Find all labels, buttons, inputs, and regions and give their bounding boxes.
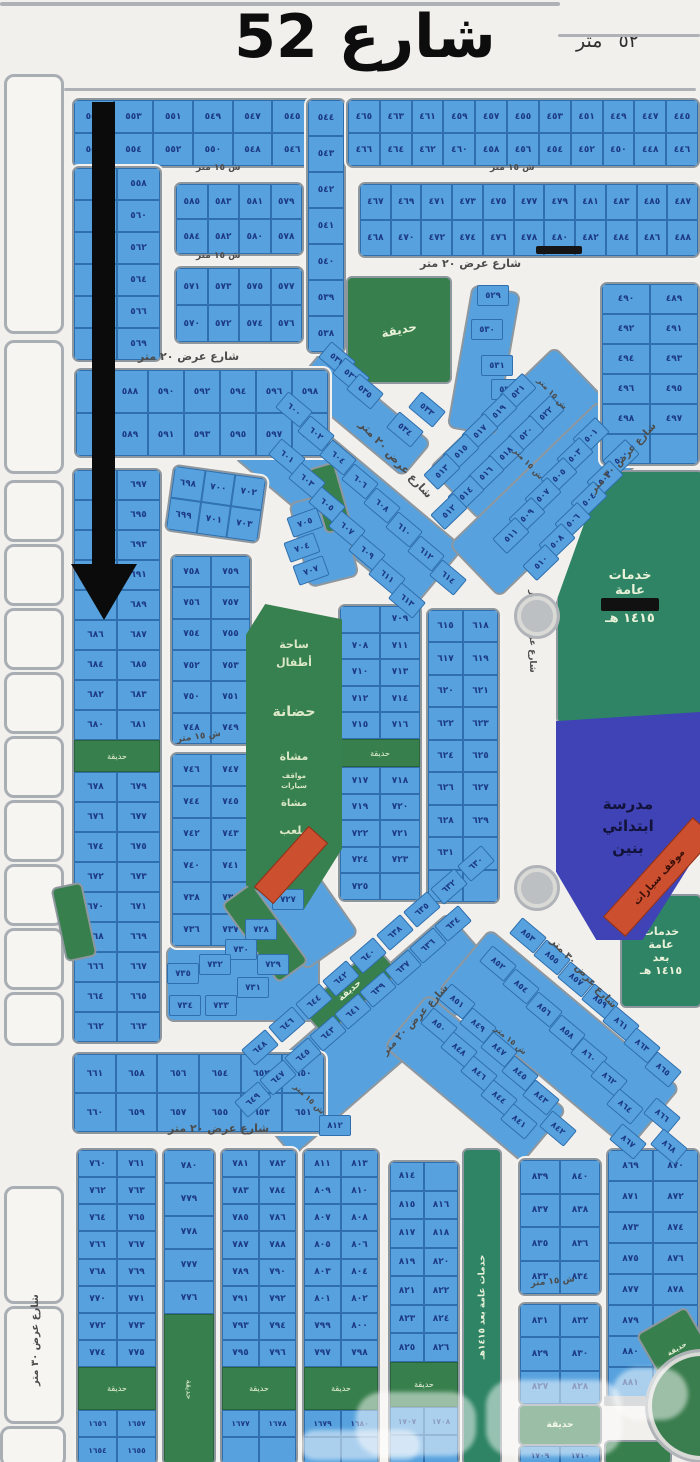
park-label: حديقة bbox=[370, 749, 390, 758]
plot-٧٢٠: ٧٢٠ bbox=[380, 794, 420, 821]
plot-٨٠٨: ٨٠٨ bbox=[341, 1204, 378, 1231]
school-label: بنين bbox=[612, 839, 643, 857]
plot-٧٥٢: ٧٥٢ bbox=[172, 650, 211, 681]
plot-٤٦٥: ٤٦٥ bbox=[348, 100, 380, 133]
plot-٦٩٥: ٦٩٥ bbox=[117, 500, 160, 530]
adjacent-plot-outline bbox=[4, 340, 64, 474]
plot-٤٥٤: ٤٥٤ bbox=[539, 133, 571, 166]
plot-٤٩٦: ٤٩٦ bbox=[602, 374, 650, 404]
plot-row: ٧٧٠٧٧١ bbox=[78, 1286, 156, 1313]
plot-٨٠١: ٨٠١ bbox=[304, 1286, 341, 1313]
plot-row: ٧٩١٧٩٢ bbox=[222, 1286, 296, 1313]
plot-row: ٧٩٣٧٩٤ bbox=[222, 1313, 296, 1340]
street-label: شارع عرض ٢٠ متر bbox=[168, 1122, 269, 1135]
plot-٦٦٠: ٦٦٠ bbox=[74, 1093, 116, 1132]
plot-٥٥٤: ٥٥٤ bbox=[114, 133, 154, 166]
plot-٨٣٧: ٨٣٧ bbox=[520, 1194, 560, 1228]
plot-٤٨٦: ٤٨٦ bbox=[637, 220, 668, 256]
plot-٤٦٩: ٤٦٩ bbox=[391, 184, 422, 220]
plot-row: ٧٤٢٧٤٣ bbox=[172, 818, 250, 850]
park-label: حديقة bbox=[249, 1384, 269, 1393]
plot-٧٣٢: ٧٣٢ bbox=[199, 954, 231, 975]
plot-row: ٧٢٤٧٢٣ bbox=[340, 847, 420, 874]
block-445: ٤٦٥٤٦٣٤٦١٤٥٩٤٥٧٤٥٥٤٥٣٤٥١٤٤٩٤٤٧٤٤٥٤٦٦٤٦٤٤… bbox=[346, 98, 700, 168]
block-760: ٧٦٠٧٦١٧٦٢٧٦٣٧٦٤٧٦٥٧٦٦٧٦٧٧٦٨٧٦٩٧٧٠٧٧١٧٧٢٧… bbox=[76, 1148, 158, 1462]
plot-row: ٧٤٠٧٤١ bbox=[172, 850, 250, 882]
plot-٧٨٣: ٧٨٣ bbox=[222, 1177, 259, 1204]
plot-٧٢٢: ٧٢٢ bbox=[340, 820, 380, 847]
plot-٨١٧: ٨١٧ bbox=[390, 1219, 424, 1248]
plot-٨٧٧: ٨٧٧ bbox=[608, 1274, 653, 1305]
plot-row: ٥٤٢ bbox=[308, 172, 344, 208]
plot-٧٧٤: ٧٧٤ bbox=[78, 1340, 117, 1367]
plot-row: ٨٧٥٨٧٦ bbox=[608, 1243, 698, 1274]
plot-row: ٦٨٤٦٨٥ bbox=[74, 650, 160, 680]
plot-row: ٤٦٨٤٧٠٤٧٢٤٧٤٤٧٦٤٧٨٤٨٠٤٨٢٤٨٤٤٨٦٤٨٨ bbox=[360, 220, 698, 256]
plot-cell-empty bbox=[424, 1162, 458, 1191]
plot-row: ٧٢٢٧٢١ bbox=[340, 820, 420, 847]
plot-٨٧٦: ٨٧٦ bbox=[653, 1243, 698, 1274]
plot-٥٤٩: ٥٤٩ bbox=[193, 100, 233, 133]
plot-٤٦٨: ٤٦٨ bbox=[360, 220, 391, 256]
plot-٥٨٠: ٥٨٠ bbox=[239, 219, 271, 254]
plot-row: ٧٠٨٧١١ bbox=[340, 633, 420, 660]
plot-٤٨١: ٤٨١ bbox=[575, 184, 606, 220]
plot-row: ٥٦٢ bbox=[74, 232, 160, 264]
plot-٦٦٥: ٦٦٥ bbox=[117, 982, 160, 1012]
plot-٤٧٦: ٤٧٦ bbox=[483, 220, 514, 256]
plot-٥٨٩: ٥٨٩ bbox=[112, 413, 148, 456]
area-label: عامة bbox=[615, 583, 645, 598]
plot-٧٥٩: ٧٥٩ bbox=[211, 556, 250, 587]
plot-٧٧٣: ٧٧٣ bbox=[117, 1313, 156, 1340]
plot-٥٣٠: ٥٣٠ bbox=[471, 319, 503, 340]
plot-row: ٨٣٧٨٣٨ bbox=[520, 1194, 600, 1228]
plot-row: ٧٥٠٧٥١ bbox=[172, 681, 250, 712]
plot-row: ٨٠١٨٠٢ bbox=[304, 1286, 378, 1313]
plot-row: ٧٨٩٧٩٠ bbox=[222, 1259, 296, 1286]
adjacent-plot-outline bbox=[4, 672, 64, 734]
plot-٨٣٨: ٨٣٨ bbox=[560, 1194, 600, 1228]
plot-٧٩١: ٧٩١ bbox=[222, 1286, 259, 1313]
plot-row: ٥٨٤٥٨٢٥٨٠٥٧٨ bbox=[176, 219, 302, 254]
plot-row: ٦٧٦٦٧٧ bbox=[74, 802, 160, 832]
plot-row: ٨٣١٨٣٢ bbox=[520, 1304, 600, 1337]
park-label: حديقة bbox=[185, 1379, 194, 1399]
plot-٧٥٧: ٧٥٧ bbox=[211, 587, 250, 618]
plot-row: ٨١١٨١٣ bbox=[304, 1150, 378, 1177]
plot-٦٨٠: ٦٨٠ bbox=[74, 710, 117, 740]
plot-٨٣٦: ٨٣٦ bbox=[560, 1227, 600, 1261]
plot-row: ٧٤٦٧٤٧ bbox=[172, 754, 250, 786]
plot-٨٢٥: ٨٢٥ bbox=[390, 1333, 424, 1362]
plot-row: ٥٣٩ bbox=[308, 280, 344, 316]
plot-٨٠٢: ٨٠٢ bbox=[341, 1286, 378, 1313]
plot-٥٤٢: ٥٤٢ bbox=[308, 172, 344, 208]
plot-٦٦٢: ٦٦٢ bbox=[74, 1012, 117, 1042]
plot-row: ٧١٩٧٢٠ bbox=[340, 794, 420, 821]
adjacent-plot-outline bbox=[4, 1186, 64, 1304]
plot-cell-empty bbox=[340, 606, 380, 633]
plot-٤٤٥: ٤٤٥ bbox=[666, 100, 698, 133]
plot-٨١١: ٨١١ bbox=[304, 1150, 341, 1177]
page-title: شارع 52 bbox=[150, 2, 580, 72]
location-arrow bbox=[92, 102, 115, 564]
plot-٨١٤: ٨١٤ bbox=[390, 1162, 424, 1191]
plot-row: ٧٧٧ bbox=[164, 1249, 214, 1282]
plot-٥٥١: ٥٥١ bbox=[153, 100, 193, 133]
plot-٧٠٢: ٧٠٢ bbox=[231, 474, 266, 510]
plot-٨١٩: ٨١٩ bbox=[390, 1248, 424, 1277]
plot-٤٥٦: ٤٥٦ bbox=[507, 133, 539, 166]
plot-٧١٢: ٧١٢ bbox=[340, 686, 380, 713]
plot-٧٤٧: ٧٤٧ bbox=[211, 754, 250, 786]
plot-٤٥١: ٤٥١ bbox=[571, 100, 603, 133]
plot-٤٤٩: ٤٤٩ bbox=[603, 100, 635, 133]
park-strip: حديقة bbox=[78, 1367, 156, 1410]
plot-٦٧١: ٦٧١ bbox=[117, 892, 160, 922]
area-label: عامة bbox=[648, 938, 673, 951]
adjacent-plot-outline bbox=[4, 608, 64, 670]
plot-٧٥٣: ٧٥٣ bbox=[211, 650, 250, 681]
plot-row: ٦٢٤٦٢٥ bbox=[428, 740, 498, 772]
plot-٥٣٩: ٥٣٩ bbox=[308, 280, 344, 316]
plot-٦٩٩: ٦٩٩ bbox=[166, 498, 201, 534]
plot-row: ٨٠٣٨٠٤ bbox=[304, 1259, 378, 1286]
plot-٤٥٥: ٤٥٥ bbox=[507, 100, 539, 133]
plot-٥٨٢: ٥٨٢ bbox=[208, 219, 240, 254]
plot-٥٩٢: ٥٩٢ bbox=[184, 370, 220, 413]
plot-٧٦٦: ٧٦٦ bbox=[78, 1231, 117, 1258]
plot-٧٨٤: ٧٨٤ bbox=[259, 1177, 296, 1204]
plot-٤٥٣: ٤٥٣ bbox=[539, 100, 571, 133]
area-label-vertical: خدمات عامة بعد ١٤١٥هـ bbox=[477, 1255, 487, 1360]
plot-٧٧٩: ٧٧٩ bbox=[164, 1183, 214, 1216]
park-feature-label: ساحة bbox=[246, 638, 342, 651]
plot-row: ٧٥٨٧٥٩ bbox=[172, 556, 250, 587]
location-arrow-head bbox=[71, 564, 137, 620]
plot-٨٣١: ٨٣١ bbox=[520, 1304, 560, 1337]
plot-٥٧٨: ٥٧٨ bbox=[271, 219, 303, 254]
plot-٨٠٠: ٨٠٠ bbox=[341, 1313, 378, 1340]
plot-٤٨٨: ٤٨٨ bbox=[667, 220, 698, 256]
plot-row: ٨٧١٨٧٢ bbox=[608, 1181, 698, 1212]
plot-٧٩٧: ٧٩٧ bbox=[304, 1340, 341, 1367]
plot-٨٧٢: ٨٧٢ bbox=[653, 1181, 698, 1212]
plot-٦٧٤: ٦٧٤ bbox=[74, 832, 117, 862]
plot-٥٩٤: ٥٩٤ bbox=[220, 370, 256, 413]
plot-٨١٦: ٨١٦ bbox=[424, 1191, 458, 1220]
plot-٦١٨: ٦١٨ bbox=[463, 610, 498, 642]
roundabout bbox=[517, 868, 557, 908]
plot-٧٨٧: ٧٨٧ bbox=[222, 1231, 259, 1258]
plot-٦٦٣: ٦٦٣ bbox=[117, 1012, 160, 1042]
plot-٧٧٦: ٧٧٦ bbox=[164, 1281, 214, 1314]
plot-٦١٩: ٦١٩ bbox=[463, 642, 498, 674]
plot-٧٢٣: ٧٢٣ bbox=[380, 847, 420, 874]
plot-row: ٦٩٥ bbox=[74, 500, 160, 530]
park-label: حديقة bbox=[107, 1384, 127, 1393]
plot-٨١٥: ٨١٥ bbox=[390, 1191, 424, 1220]
block-489: ٤٩٠٤٨٩٤٩٢٤٩١٤٩٤٤٩٣٤٩٦٤٩٥٤٩٨٤٩٧٤٩٩ bbox=[600, 282, 700, 466]
plot-٧٥٥: ٧٥٥ bbox=[211, 619, 250, 650]
plot-٥٣١: ٥٣١ bbox=[481, 355, 513, 376]
plot-row: ٨٢٣٨٢٤ bbox=[390, 1305, 458, 1334]
plot-٤٩٣: ٤٩٣ bbox=[650, 344, 698, 374]
plot-٦٨٣: ٦٨٣ bbox=[117, 680, 160, 710]
plot-٦٨٦: ٦٨٦ bbox=[74, 620, 117, 650]
plot-٧٨٢: ٧٨٢ bbox=[259, 1150, 296, 1177]
plot-٨٣٩: ٨٣٩ bbox=[520, 1160, 560, 1194]
plot-row: ٧٨٥٧٨٦ bbox=[222, 1204, 296, 1231]
plot-row: ٦٧٨٦٧٩ bbox=[74, 772, 160, 802]
plot-٦٢٠: ٦٢٠ bbox=[428, 675, 463, 707]
plot-٤٦٤: ٤٦٤ bbox=[380, 133, 412, 166]
plot-row: ٨٣٥٨٣٦ bbox=[520, 1227, 600, 1261]
watermark bbox=[300, 1430, 420, 1460]
plot-٨٠٧: ٨٠٧ bbox=[304, 1204, 341, 1231]
plot-٧٣٥: ٧٣٥ bbox=[167, 963, 199, 984]
plot-٤٤٧: ٤٤٧ bbox=[634, 100, 666, 133]
plot-٧٩٥: ٧٩٥ bbox=[222, 1340, 259, 1367]
adjacent-plot-outline bbox=[4, 544, 64, 606]
plot-row: ٦٩٧ bbox=[74, 470, 160, 500]
plot-٧٣٨: ٧٣٨ bbox=[172, 882, 211, 914]
plot-row: ٤٦٦٤٦٤٤٦٢٤٦٠٤٥٨٤٥٦٤٥٤٤٥٢٤٥٠٤٤٨٤٤٦ bbox=[348, 133, 698, 166]
plot-٨٣٢: ٨٣٢ bbox=[560, 1304, 600, 1337]
plot-٦٦٤: ٦٦٤ bbox=[74, 982, 117, 1012]
plot-row: ٨٢١٨٢٢ bbox=[390, 1276, 458, 1305]
plot-row: ٦٨٢٦٨٣ bbox=[74, 680, 160, 710]
plot-row: ٧٨٧٧٨٨ bbox=[222, 1231, 296, 1258]
plot-٧٦٨: ٧٦٨ bbox=[78, 1259, 117, 1286]
plot-٦٢١: ٦٢١ bbox=[463, 675, 498, 707]
plot-row: ٨٧٧٨٧٨ bbox=[608, 1274, 698, 1305]
plot-٧٩٠: ٧٩٠ bbox=[259, 1259, 296, 1286]
block-571: ٥٧١٥٧٣٥٧٥٥٧٧٥٧٠٥٧٢٥٧٤٥٧٦ bbox=[174, 266, 304, 344]
plot-row: ٨٢٥٨٢٦ bbox=[390, 1333, 458, 1362]
plot-row: ٧١٠٧١٣ bbox=[340, 659, 420, 686]
plot-٧٩٨: ٧٩٨ bbox=[341, 1340, 378, 1367]
plot-٧٤٣: ٧٤٣ bbox=[211, 818, 250, 850]
plot-٥٤٤: ٥٤٤ bbox=[308, 100, 344, 136]
adjacent-plot-outline bbox=[0, 1426, 66, 1462]
plot-cell-empty bbox=[380, 873, 420, 900]
plot-row bbox=[222, 1437, 296, 1462]
plot-٥٩٣: ٥٩٣ bbox=[184, 413, 220, 456]
plot-٧٠٨: ٧٠٨ bbox=[340, 633, 380, 660]
plot-٤٩١: ٤٩١ bbox=[650, 314, 698, 344]
plot-٧١٨: ٧١٨ bbox=[380, 767, 420, 794]
plot-row: ٧٨٣٧٨٤ bbox=[222, 1177, 296, 1204]
plot-٧٤٤: ٧٤٤ bbox=[172, 786, 211, 818]
park-area: حديقة bbox=[346, 276, 452, 384]
plot-row: ٧١٢٧١٤ bbox=[340, 686, 420, 713]
plot-row: ٥٧٠٥٧٢٥٧٤٥٧٦ bbox=[176, 305, 302, 342]
plot-row: ٨١٥٨١٦ bbox=[390, 1191, 458, 1220]
plot-row: ٦٧٤٦٧٥ bbox=[74, 832, 160, 862]
plot-row: ٧٧٤٧٧٥ bbox=[78, 1340, 156, 1367]
plot-row: ٨٦٩٨٧٠ bbox=[608, 1150, 698, 1181]
plot-٥٧٧: ٥٧٧ bbox=[271, 268, 303, 305]
plot-٧٥١: ٧٥١ bbox=[211, 681, 250, 712]
plot-٤٧٣: ٤٧٣ bbox=[452, 184, 483, 220]
plot-٨٢٢: ٨٢٢ bbox=[424, 1276, 458, 1305]
plot-٥٦٢: ٥٦٢ bbox=[117, 232, 160, 264]
plot-٥٩١: ٥٩١ bbox=[148, 413, 184, 456]
plot-row: ٦٩٣ bbox=[74, 530, 160, 560]
plot-٥٧٥: ٥٧٥ bbox=[239, 268, 271, 305]
adjacent-plot-outline bbox=[4, 928, 64, 990]
plot-٧٦٥: ٧٦٥ bbox=[117, 1204, 156, 1231]
plot-٧٤٦: ٧٤٦ bbox=[172, 754, 211, 786]
plot-row: ٧٧٨ bbox=[164, 1216, 214, 1249]
plot-٧٣٤: ٧٣٤ bbox=[169, 995, 201, 1016]
plot-٧٣٣: ٧٣٣ bbox=[205, 995, 237, 1016]
plot-٨٠٩: ٨٠٩ bbox=[304, 1177, 341, 1204]
plot-٨١٢: ٨١٢ bbox=[319, 1115, 351, 1136]
plot-row: ٧٦٠٧٦١ bbox=[78, 1150, 156, 1177]
plot-٦٢٩: ٦٢٩ bbox=[463, 805, 498, 837]
plot-٥٨٥: ٥٨٥ bbox=[176, 184, 208, 219]
plot-٤٧٥: ٤٧٥ bbox=[483, 184, 514, 220]
park-feature-label: حضانة bbox=[246, 704, 342, 720]
plot-٨٧١: ٨٧١ bbox=[608, 1181, 653, 1212]
plot-٨٣٠: ٨٣٠ bbox=[560, 1337, 600, 1370]
block-708: ٧٠٩٧٠٨٧١١٧١٠٧١٣٧١٢٧١٤٧١٥٧١٦حديقة٧١٧٧١٨٧١… bbox=[338, 604, 422, 902]
plot-٧١٤: ٧١٤ bbox=[380, 686, 420, 713]
plot-٥٨٤: ٥٨٤ bbox=[176, 219, 208, 254]
plot-٦٨٤: ٦٨٤ bbox=[74, 650, 117, 680]
plot-row: ٦٢٨٦٢٩ bbox=[428, 805, 498, 837]
plot-٧٤٥: ٧٤٥ bbox=[211, 786, 250, 818]
plot-row: ٨٠٩٨١٠ bbox=[304, 1177, 378, 1204]
plot-٧١١: ٧١١ bbox=[380, 633, 420, 660]
plot-٧٥٦: ٧٥٦ bbox=[172, 587, 211, 618]
plot-row: ٧٨٠ bbox=[164, 1150, 214, 1183]
plot-٨٢٠: ٨٢٠ bbox=[424, 1248, 458, 1277]
plot-row: ٧٥٤٧٥٥ bbox=[172, 619, 250, 650]
area-label: ١٤١٥ هـ bbox=[605, 611, 655, 626]
plot-٥٢٩: ٥٢٩ bbox=[477, 285, 509, 306]
map-frame-line bbox=[558, 34, 700, 37]
adjacent-plot-outline bbox=[4, 736, 64, 798]
plot-٤٩٤: ٤٩٤ bbox=[602, 344, 650, 374]
plot-٧٥٨: ٧٥٨ bbox=[172, 556, 211, 587]
plot-١٦٥٧: ١٦٥٧ bbox=[117, 1410, 156, 1437]
black-highlight-mark bbox=[536, 246, 582, 254]
plot-٨٢٣: ٨٢٣ bbox=[390, 1305, 424, 1334]
plot-row: ٥٤١ bbox=[308, 208, 344, 244]
plot-row: ٥٤٣ bbox=[308, 136, 344, 172]
plot-٧٦٩: ٧٦٩ bbox=[117, 1259, 156, 1286]
block-698: ٦٩٨٧٠٠٧٠٢٦٩٩٧٠١٧٠٣ bbox=[164, 464, 269, 545]
street-label: شارع عرض ٢٠ متر bbox=[138, 350, 239, 363]
block-776: ٧٨٠٧٧٩٧٧٨٧٧٧٧٧٦حديقة bbox=[162, 1148, 216, 1462]
plot-٧٦٧: ٧٦٧ bbox=[117, 1231, 156, 1258]
plot-٧٧٢: ٧٧٢ bbox=[78, 1313, 117, 1340]
plot-٦٨٧: ٦٨٧ bbox=[117, 620, 160, 650]
plot-٤٨٥: ٤٨٥ bbox=[637, 184, 668, 220]
plot-٤٦٠: ٤٦٠ bbox=[443, 133, 475, 166]
plot-row: ٨٢٩٨٣٠ bbox=[520, 1337, 600, 1370]
plot-٧٨٨: ٧٨٨ bbox=[259, 1231, 296, 1258]
plot-٥٦٤: ٥٦٤ bbox=[117, 264, 160, 296]
plot-٨١٣: ٨١٣ bbox=[341, 1150, 378, 1177]
plot-٦٧٦: ٦٧٦ bbox=[74, 802, 117, 832]
plot-row: ٥٦٤ bbox=[74, 264, 160, 296]
plot-٦٢٢: ٦٢٢ bbox=[428, 707, 463, 739]
plot-row: ٥٤٠ bbox=[308, 244, 344, 280]
plot-٦٢٤: ٦٢٤ bbox=[428, 740, 463, 772]
plot-٧٨٦: ٧٨٦ bbox=[259, 1204, 296, 1231]
plot-٨٧٨: ٨٧٨ bbox=[653, 1274, 698, 1305]
adjacent-plot-outline bbox=[4, 480, 64, 542]
plot-row: ٥٦٠ bbox=[74, 200, 160, 232]
plot-row: ٧٧٦ bbox=[164, 1281, 214, 1314]
plot-row: ٦٦٢٦٦٣ bbox=[74, 1012, 160, 1042]
plot-٧٤٢: ٧٤٢ bbox=[172, 818, 211, 850]
park-feature-label: مشاة bbox=[246, 798, 342, 809]
plot-١٦٧٧: ١٦٧٧ bbox=[222, 1410, 259, 1437]
plot-٧٢٨: ٧٢٨ bbox=[245, 919, 277, 940]
adjacent-plot-outline bbox=[4, 74, 64, 334]
plot-row: ٧١٧٧١٨ bbox=[340, 767, 420, 794]
park-strip: حديقة bbox=[74, 740, 160, 772]
park-feature-label: ملعب bbox=[246, 824, 342, 837]
plot-٧٦٠: ٧٦٠ bbox=[78, 1150, 117, 1177]
plot-٥٧٣: ٥٧٣ bbox=[208, 268, 240, 305]
plot-٧٢٩: ٧٢٩ bbox=[257, 954, 289, 975]
plot-٨٣٥: ٨٣٥ bbox=[520, 1227, 560, 1261]
street-label: ش ١٥ متر bbox=[196, 163, 241, 173]
plot-٧٦٣: ٧٦٣ bbox=[117, 1177, 156, 1204]
plot-٨٢١: ٨٢١ bbox=[390, 1276, 424, 1305]
plot-٧٣١: ٧٣١ bbox=[237, 977, 269, 998]
area-label: مستغل bbox=[601, 598, 659, 611]
plot-row: ٨١٧٨١٨ bbox=[390, 1219, 458, 1248]
plot-٤٨٩: ٤٨٩ bbox=[650, 284, 698, 314]
plot-٨٠٥: ٨٠٥ bbox=[304, 1231, 341, 1258]
plot-٧١٩: ٧١٩ bbox=[340, 794, 380, 821]
area-label: ١٤١٥ هـ bbox=[640, 964, 682, 977]
plot-٧٢٥: ٧٢٥ bbox=[340, 873, 380, 900]
plot-٧٣٦: ٧٣٦ bbox=[172, 914, 211, 946]
adjacent-plot-outline bbox=[4, 992, 64, 1046]
plot-٤٥٩: ٤٥٩ bbox=[443, 100, 475, 133]
plot-٤٧٧: ٤٧٧ bbox=[514, 184, 545, 220]
plot-٤٩٥: ٤٩٥ bbox=[650, 374, 698, 404]
park-label: حديقة bbox=[414, 1380, 434, 1389]
plot-٥٧٦: ٥٧٦ bbox=[271, 305, 303, 342]
plot-٧٤١: ٧٤١ bbox=[211, 850, 250, 882]
plot-٥٧٢: ٥٧٢ bbox=[208, 305, 240, 342]
plot-٤٥٢: ٤٥٢ bbox=[571, 133, 603, 166]
plot-row: ٥٧١٥٧٣٥٧٥٥٧٧ bbox=[176, 268, 302, 305]
watermark bbox=[612, 1368, 688, 1420]
plot-٥٥٠: ٥٥٠ bbox=[193, 133, 233, 166]
plot-row: ٥٥٨ bbox=[74, 168, 160, 200]
plot-٥٨٨: ٥٨٨ bbox=[112, 370, 148, 413]
plot-٧٦٢: ٧٦٢ bbox=[78, 1177, 117, 1204]
plot-٨٢٤: ٨٢٤ bbox=[424, 1305, 458, 1334]
plot-١٦٥٥: ١٦٥٥ bbox=[117, 1437, 156, 1462]
plot-row: ١٦٥٦١٦٥٧ bbox=[78, 1410, 156, 1437]
block-558: ٥٥٨٥٦٠٥٦٢٥٦٤٥٦٦٥٦٩ bbox=[72, 166, 162, 362]
plot-row: ٧٧٢٧٧٣ bbox=[78, 1313, 156, 1340]
plot-٦٧٨: ٦٧٨ bbox=[74, 772, 117, 802]
plot-row: ٦٨٦٦٨٧ bbox=[74, 620, 160, 650]
